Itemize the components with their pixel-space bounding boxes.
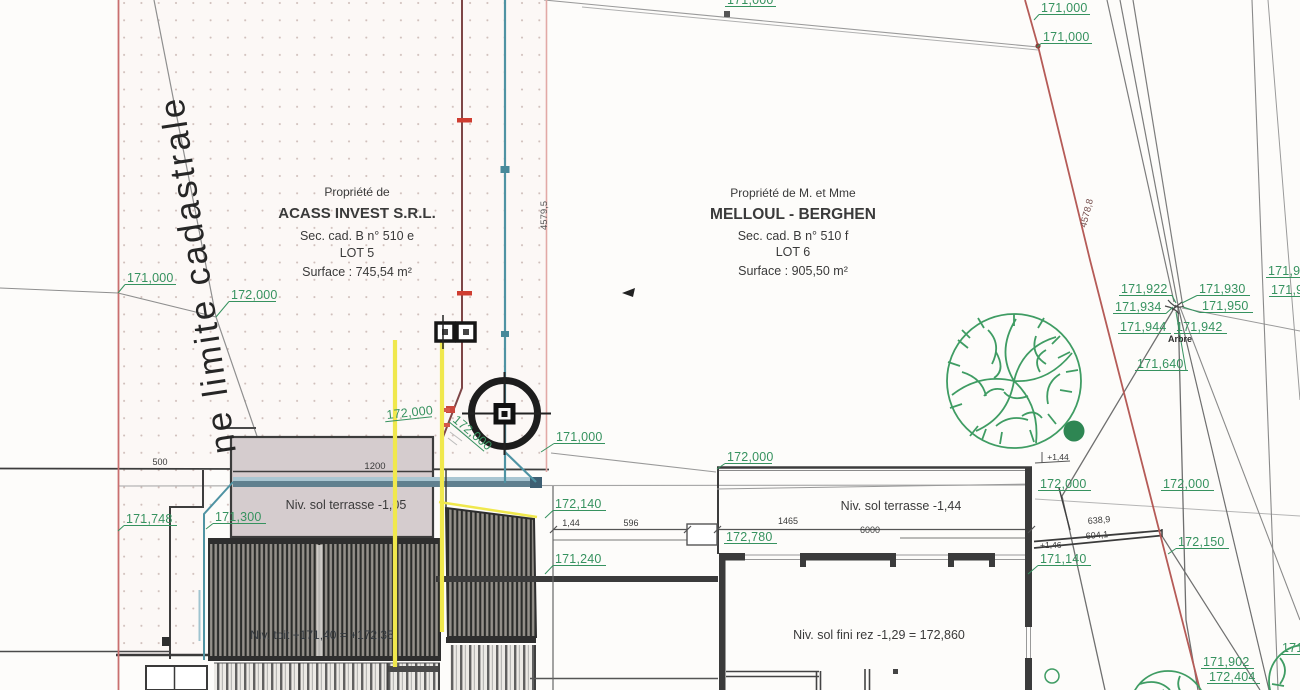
svg-text:Arbre: Arbre <box>1168 334 1192 344</box>
svg-text:604,1: 604,1 <box>1085 529 1108 541</box>
svg-text:Surface : 745,54 m²: Surface : 745,54 m² <box>302 265 412 279</box>
svg-text:171,9: 171,9 <box>1271 283 1300 297</box>
svg-text:Propriété de: Propriété de <box>324 185 390 199</box>
svg-text:171,000: 171,000 <box>1043 30 1090 44</box>
svg-text:Niv. toit +171,40 = +172,35: Niv. toit +171,40 = +172,35 <box>250 628 394 642</box>
svg-text:500: 500 <box>152 457 167 467</box>
svg-text:172,780: 172,780 <box>726 530 773 544</box>
svg-text:Niv. sol terrasse -1,05: Niv. sol terrasse -1,05 <box>286 498 407 512</box>
svg-text:171,000: 171,000 <box>127 271 174 285</box>
svg-text:171,9: 171,9 <box>1268 264 1300 278</box>
svg-text:Sec. cad. B n° 510 f: Sec. cad. B n° 510 f <box>738 229 849 243</box>
svg-text:172,000: 172,000 <box>1163 477 1210 491</box>
svg-text:LOT 6: LOT 6 <box>776 245 811 259</box>
svg-text:171,930: 171,930 <box>1199 282 1246 296</box>
svg-text:Sec. cad. B n° 510 e: Sec. cad. B n° 510 e <box>300 229 414 243</box>
svg-text:1200: 1200 <box>364 461 385 472</box>
svg-text:171,300: 171,300 <box>215 510 262 524</box>
svg-text:171,922: 171,922 <box>1121 282 1168 296</box>
svg-text:171,140: 171,140 <box>1040 552 1087 566</box>
svg-text:171,000: 171,000 <box>1041 1 1088 15</box>
svg-text:4579,5: 4579,5 <box>539 201 550 230</box>
svg-text:Niv. sol terrasse -1,44: Niv. sol terrasse -1,44 <box>841 499 962 513</box>
svg-text:171,950: 171,950 <box>1202 299 1249 313</box>
svg-text:Surface : 905,50 m²: Surface : 905,50 m² <box>738 264 848 278</box>
svg-text:171,942: 171,942 <box>1176 320 1223 334</box>
svg-text:172,140: 172,140 <box>555 497 602 511</box>
svg-text:172,000: 172,000 <box>727 450 774 464</box>
svg-text:172,404: 172,404 <box>1209 670 1256 684</box>
svg-text:1465: 1465 <box>778 516 798 526</box>
svg-text:171,934: 171,934 <box>1115 300 1162 314</box>
svg-text:6000: 6000 <box>860 525 880 535</box>
svg-text:171,902: 171,902 <box>1203 655 1250 669</box>
svg-text:ACASS INVEST S.R.L.: ACASS INVEST S.R.L. <box>278 205 436 222</box>
svg-text:638,9: 638,9 <box>1087 514 1110 526</box>
svg-text:Niv. sol fini rez -1,29 = 172,: Niv. sol fini rez -1,29 = 172,860 <box>793 628 965 642</box>
svg-text:171,640: 171,640 <box>1137 357 1184 371</box>
svg-text:171,000: 171,000 <box>556 430 603 444</box>
svg-text:596: 596 <box>623 518 638 528</box>
svg-text:171,000: 171,000 <box>727 0 774 7</box>
svg-text:+1,46: +1,46 <box>1040 540 1062 550</box>
svg-text:172,000: 172,000 <box>231 288 278 302</box>
svg-text:171,944: 171,944 <box>1120 320 1167 334</box>
svg-text:+1,44: +1,44 <box>1047 452 1069 462</box>
svg-text:172,150: 172,150 <box>1178 535 1225 549</box>
svg-text:171,240: 171,240 <box>555 552 602 566</box>
svg-text:171,748: 171,748 <box>126 512 173 526</box>
svg-text:172,000: 172,000 <box>1040 477 1087 491</box>
svg-text:1,44: 1,44 <box>562 518 580 528</box>
svg-text:Propriété de M. et Mme: Propriété de M. et Mme <box>730 186 856 200</box>
svg-text:MELLOUL - BERGHEN: MELLOUL - BERGHEN <box>710 206 876 223</box>
svg-text:LOT 5: LOT 5 <box>340 246 375 260</box>
